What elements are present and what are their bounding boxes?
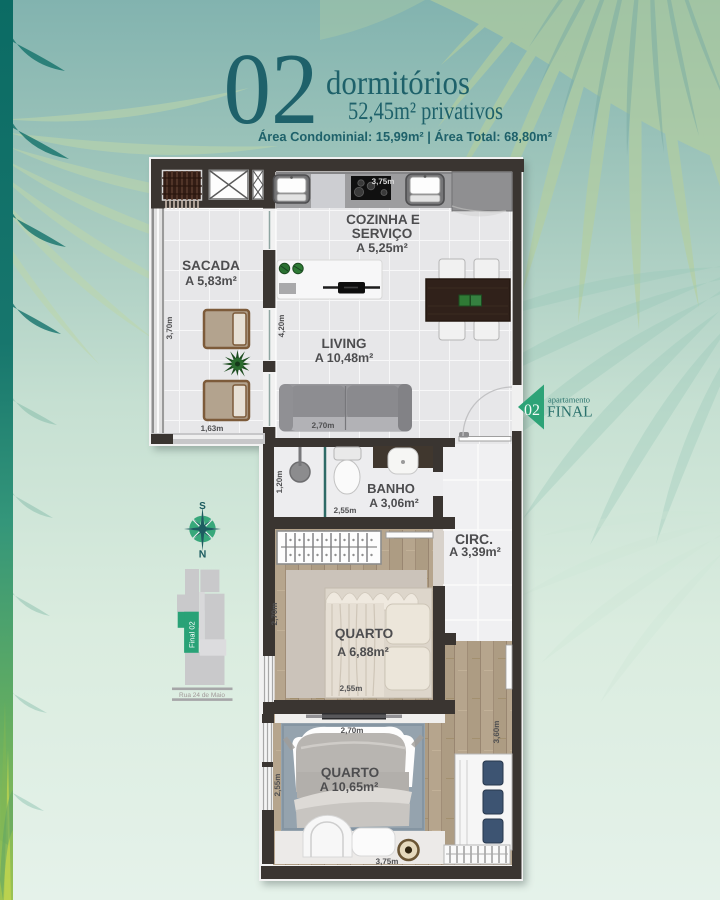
svg-text:QUARTO: QUARTO <box>335 626 393 641</box>
svg-text:3,60m: 3,60m <box>492 721 501 744</box>
svg-text:3,75m: 3,75m <box>372 177 395 186</box>
svg-text:SACADA: SACADA <box>182 258 240 273</box>
svg-text:52,45m² privativos: 52,45m² privativos <box>348 98 503 125</box>
svg-text:A 6,88m²: A 6,88m² <box>337 645 389 659</box>
svg-text:Rua 24 de Maio: Rua 24 de Maio <box>179 692 225 699</box>
svg-text:COZINHA E: COZINHA E <box>346 212 420 227</box>
svg-text:LIVING: LIVING <box>321 336 366 351</box>
svg-text:A 5,83m²: A 5,83m² <box>185 274 237 288</box>
svg-text:A 3,06m²: A 3,06m² <box>369 496 419 510</box>
svg-text:2,70m: 2,70m <box>270 603 279 626</box>
svg-text:4,20m: 4,20m <box>277 315 286 338</box>
svg-text:2,55m: 2,55m <box>273 774 282 797</box>
svg-text:1,63m: 1,63m <box>201 424 224 433</box>
svg-text:QUARTO: QUARTO <box>321 765 379 780</box>
svg-text:BANHO: BANHO <box>367 481 415 496</box>
svg-text:A 3,39m²: A 3,39m² <box>449 545 501 559</box>
svg-text:FINAL: FINAL <box>547 404 593 421</box>
svg-text:3,75m: 3,75m <box>376 857 399 866</box>
svg-text:Área Condominial: 15,99m² | Ár: Área Condominial: 15,99m² | Área Total: … <box>258 129 553 144</box>
svg-text:Final 02: Final 02 <box>188 621 197 648</box>
svg-text:N: N <box>199 549 207 561</box>
svg-text:2,70m: 2,70m <box>312 421 335 430</box>
svg-text:2,55m: 2,55m <box>340 684 363 693</box>
svg-text:02: 02 <box>524 402 540 419</box>
svg-text:2,55m: 2,55m <box>334 506 357 515</box>
svg-text:dormitórios: dormitórios <box>326 65 470 102</box>
svg-text:A 10,48m²: A 10,48m² <box>315 351 374 365</box>
svg-text:A 5,25m²: A 5,25m² <box>356 241 408 255</box>
svg-text:SERVIÇO: SERVIÇO <box>352 226 413 241</box>
svg-text:3,70m: 3,70m <box>165 317 174 340</box>
svg-text:2,70m: 2,70m <box>341 726 364 735</box>
svg-text:A 10,65m²: A 10,65m² <box>320 780 379 794</box>
svg-text:1,20m: 1,20m <box>275 471 284 494</box>
